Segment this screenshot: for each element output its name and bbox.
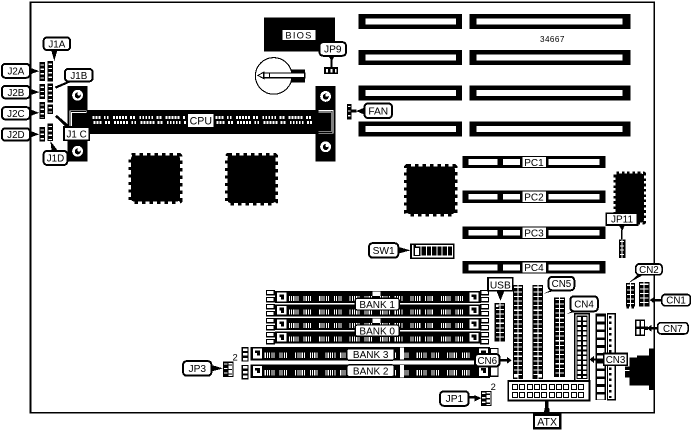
- svg-text:PC2: PC2: [524, 193, 544, 204]
- svg-text:2: 2: [233, 351, 238, 362]
- svg-text:J2D: J2D: [7, 130, 24, 141]
- svg-text:J1D: J1D: [47, 154, 64, 165]
- svg-text:JP9: JP9: [324, 45, 342, 56]
- svg-text:34667: 34667: [540, 35, 565, 44]
- svg-text:CN2: CN2: [639, 265, 659, 276]
- svg-text:CN4: CN4: [574, 299, 594, 310]
- svg-text:J2C: J2C: [7, 109, 24, 120]
- svg-text:JP3: JP3: [188, 364, 206, 375]
- svg-text:SW1: SW1: [373, 246, 395, 257]
- svg-text:CN6: CN6: [477, 356, 497, 367]
- svg-text:PC3: PC3: [524, 229, 544, 240]
- svg-text:BIOS: BIOS: [285, 29, 312, 40]
- svg-text:J1B: J1B: [70, 71, 87, 82]
- svg-text:J2A: J2A: [7, 66, 24, 77]
- svg-text:USB: USB: [490, 280, 511, 291]
- svg-text:J2B: J2B: [7, 88, 24, 99]
- svg-text:ATX: ATX: [537, 416, 557, 428]
- svg-text:CPU: CPU: [190, 115, 212, 127]
- svg-text:BANK 2: BANK 2: [353, 366, 389, 377]
- svg-text:PC1: PC1: [524, 158, 544, 169]
- svg-text:CN5: CN5: [552, 279, 572, 290]
- svg-text:CN3: CN3: [606, 355, 626, 366]
- svg-text:JP1: JP1: [446, 394, 464, 405]
- svg-text:BANK 1: BANK 1: [359, 300, 395, 311]
- svg-text:J1 C: J1 C: [67, 129, 87, 140]
- svg-text:JP11: JP11: [611, 215, 633, 226]
- svg-text:2: 2: [491, 381, 496, 392]
- svg-text:BANK 0: BANK 0: [359, 326, 395, 337]
- svg-text:PC4: PC4: [524, 263, 544, 274]
- svg-text:FAN: FAN: [368, 106, 388, 117]
- svg-text:BANK 3: BANK 3: [353, 350, 389, 361]
- svg-text:CN7: CN7: [663, 324, 683, 335]
- svg-text:J1A: J1A: [48, 39, 65, 50]
- svg-text:CN1: CN1: [666, 296, 686, 307]
